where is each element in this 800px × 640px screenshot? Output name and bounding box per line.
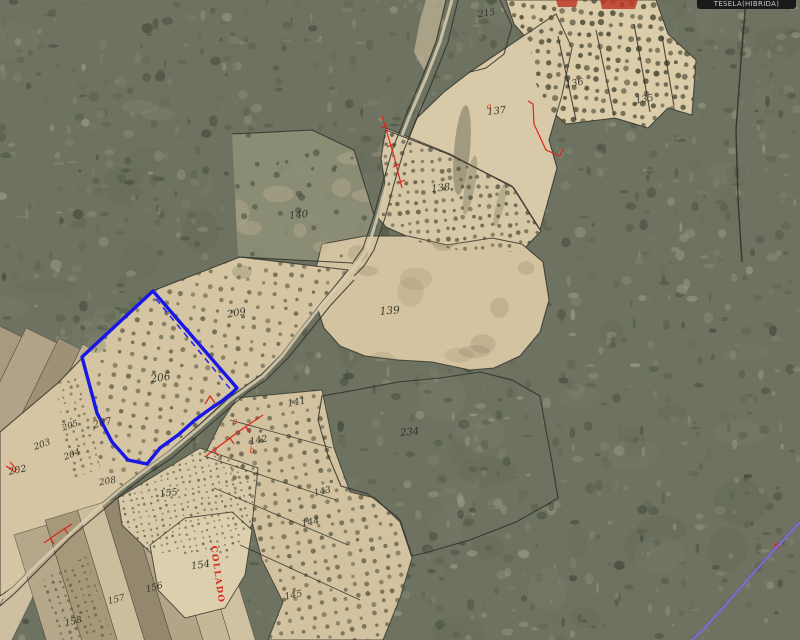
parcel-label-140: 140 bbox=[289, 209, 310, 222]
parcel-label-139: 139 bbox=[379, 304, 400, 317]
map-layer-badge: TESELA(HIBRIDA) bbox=[697, 0, 796, 9]
aerial-cadastral-map[interactable]: COLLADO 21513713613513814013920920620720… bbox=[0, 0, 800, 640]
map-layer-badge-text: TESELA(HIBRIDA) bbox=[714, 0, 780, 8]
parcel-label-138: 138 bbox=[431, 182, 451, 195]
red-building bbox=[556, 0, 578, 7]
parcel-label-234: 234 bbox=[399, 426, 420, 439]
red-letter-a: a bbox=[233, 417, 238, 426]
red-letter-b: b bbox=[249, 446, 254, 455]
red-building bbox=[600, 0, 638, 9]
red-letter-a: a bbox=[487, 102, 492, 111]
map-viewport[interactable]: COLLADO 21513713613513814013920920620720… bbox=[0, 0, 800, 640]
